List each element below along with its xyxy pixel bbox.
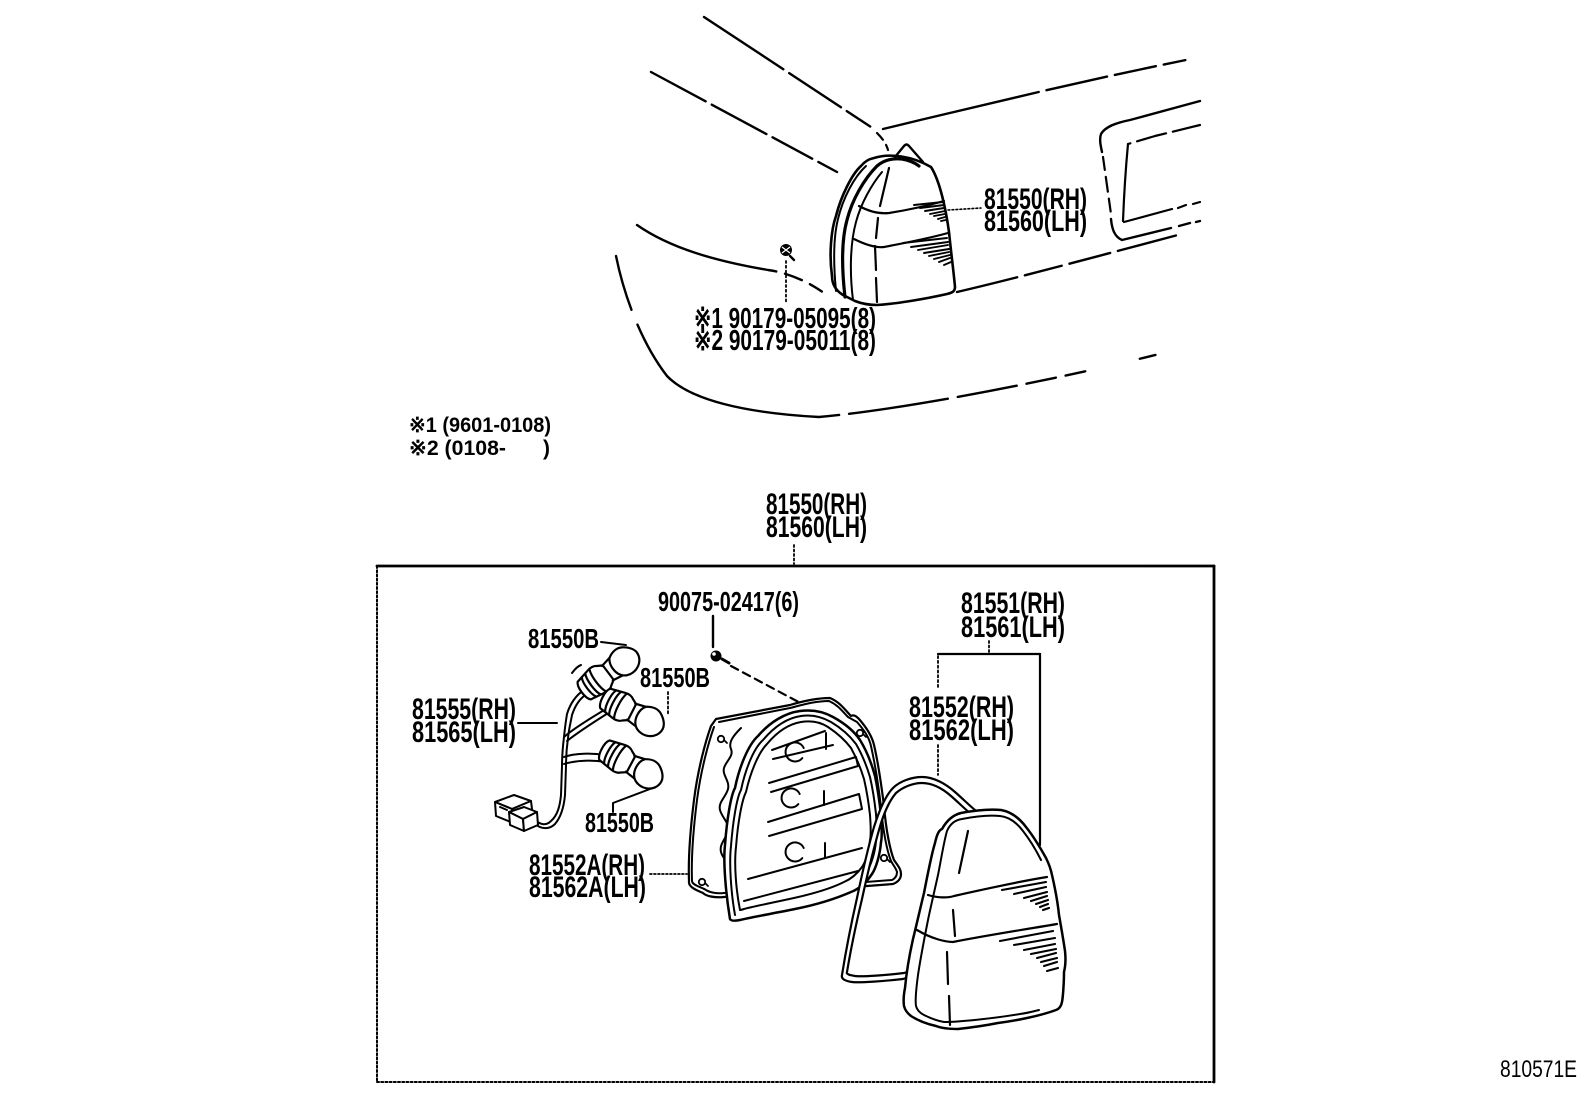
svg-text:90075-02417(6): 90075-02417(6) bbox=[658, 586, 799, 617]
svg-text:81565(LH): 81565(LH) bbox=[412, 716, 516, 749]
svg-text:※1 (9601-0108): ※1 (9601-0108) bbox=[409, 414, 551, 437]
svg-text:※2 90179-05011(8): ※2 90179-05011(8) bbox=[694, 325, 876, 357]
svg-text:81561(LH): 81561(LH) bbox=[961, 611, 1065, 644]
svg-text:): ) bbox=[543, 437, 550, 460]
svg-text:81560(LH): 81560(LH) bbox=[766, 511, 867, 544]
svg-text:810571E: 810571E bbox=[1500, 1056, 1577, 1083]
svg-text:81560(LH): 81560(LH) bbox=[984, 205, 1087, 238]
svg-text:81562A(LH): 81562A(LH) bbox=[529, 871, 646, 904]
svg-text:81550B: 81550B bbox=[585, 807, 654, 838]
svg-text:※2 (0108-: ※2 (0108- bbox=[409, 437, 506, 460]
svg-text:81550B: 81550B bbox=[528, 623, 599, 654]
svg-text:81550B: 81550B bbox=[640, 662, 710, 693]
svg-text:81562(LH): 81562(LH) bbox=[909, 714, 1014, 747]
